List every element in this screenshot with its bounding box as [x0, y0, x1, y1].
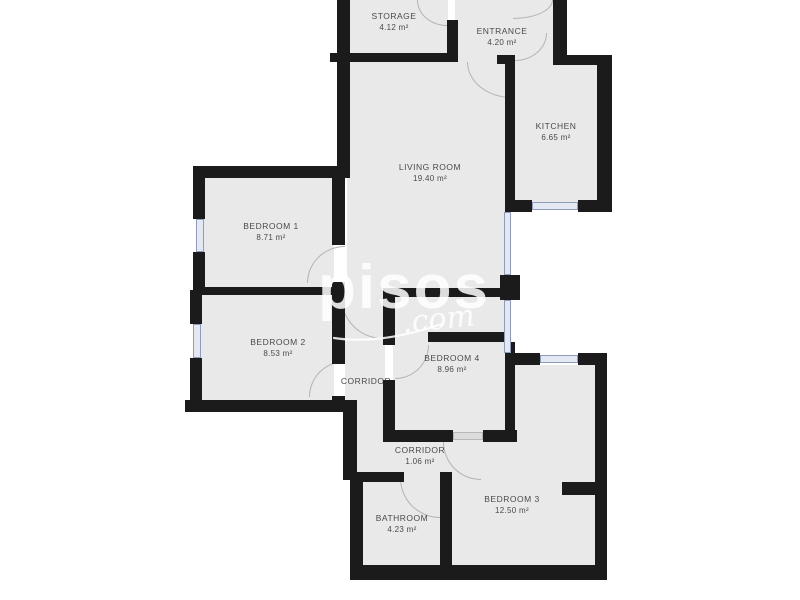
wall-corridor-left	[343, 412, 357, 480]
wall-left-top	[337, 0, 350, 178]
wall-bedroom4-bottom-right	[483, 430, 517, 442]
label-storage-area: 4.12 m²	[372, 22, 417, 33]
wall-bedroom4-bottom-left	[383, 430, 453, 442]
label-storage: STORAGE 4.12 m²	[372, 11, 417, 33]
label-storage-name: STORAGE	[372, 11, 417, 22]
label-kitchen-name: KITCHEN	[536, 121, 577, 132]
label-bedroom3: BEDROOM 3 12.50 m²	[484, 494, 540, 516]
wall-step	[562, 482, 607, 495]
label-bedroom4: BEDROOM 4 8.96 m²	[424, 353, 480, 375]
wall-bedroom4-left-lower	[383, 380, 395, 430]
label-corridor-small: CORRIDOR 1.06 m²	[395, 445, 445, 467]
wall-bathroom-top	[352, 472, 404, 482]
label-bathroom-area: 4.23 m²	[376, 524, 428, 535]
room-bedroom3-arm	[513, 365, 597, 483]
label-corridor-small-name: CORRIDOR	[395, 445, 445, 456]
threshold-bedroom4	[453, 432, 483, 440]
label-bedroom2-area: 8.53 m²	[250, 348, 306, 359]
label-bedroom2: BEDROOM 2 8.53 m²	[250, 337, 306, 359]
window-kitchen	[532, 202, 578, 210]
label-bedroom1: BEDROOM 1 8.71 m²	[243, 221, 299, 243]
label-bedroom3-area: 12.50 m²	[484, 505, 540, 516]
window-lightwell-upper	[504, 212, 511, 275]
label-entrance-name: ENTRANCE	[477, 26, 528, 37]
wall-kitchen-living-divider	[505, 62, 515, 212]
window-bedroom2	[193, 324, 201, 358]
window-lightwell-lower	[504, 300, 511, 353]
label-living-room: LIVING ROOM 19.40 m²	[399, 162, 461, 184]
label-bedroom2-name: BEDROOM 2	[250, 337, 306, 348]
wall-bathroom-right	[440, 472, 452, 567]
window-bedroom1	[196, 219, 204, 252]
wall-kitchen-bottom-right	[578, 200, 608, 212]
label-bathroom-name: BATHROOM	[376, 513, 428, 524]
wall-kitchen-right	[597, 55, 612, 212]
wall-bedroom1-top	[195, 166, 345, 178]
label-bedroom4-area: 8.96 m²	[424, 364, 480, 375]
label-bedroom4-name: BEDROOM 4	[424, 353, 480, 364]
label-corridor-small-area: 1.06 m²	[395, 456, 445, 467]
label-kitchen-area: 6.65 m²	[536, 132, 577, 143]
wall-storage-bottom	[330, 53, 447, 62]
wall-bedroom1-left-lower	[193, 252, 205, 292]
label-entrance-area: 4.20 m²	[477, 37, 528, 48]
label-bedroom1-area: 8.71 m²	[243, 232, 299, 243]
wall-lightwell-pillar	[500, 275, 520, 300]
label-bathroom: BATHROOM 4.23 m²	[376, 513, 428, 535]
label-entrance: ENTRANCE 4.20 m²	[477, 26, 528, 48]
wall-kitchen-bottom-left	[512, 200, 532, 212]
wall-bedroom1-left-upper	[193, 166, 205, 219]
label-bedroom1-name: BEDROOM 1	[243, 221, 299, 232]
floor-plan: STORAGE 4.12 m² ENTRANCE 4.20 m² KITCHEN…	[0, 0, 800, 600]
wall-entrance-right	[553, 0, 567, 57]
wall-right-main	[595, 353, 607, 580]
wall-bedroom2-left-upper	[190, 290, 202, 324]
label-living-room-name: LIVING ROOM	[399, 162, 461, 173]
wall-bathroom-left	[350, 472, 363, 567]
wall-arm-top-left	[513, 353, 540, 365]
wall-bedrooms-right-c	[332, 396, 345, 412]
label-bedroom3-name: BEDROOM 3	[484, 494, 540, 505]
wall-bottom	[350, 565, 607, 580]
wall-bedrooms-right-a	[332, 178, 345, 245]
label-living-room-area: 19.40 m²	[399, 173, 461, 184]
wall-storage-entrance-divider	[447, 20, 458, 62]
label-kitchen: KITCHEN 6.65 m²	[536, 121, 577, 143]
window-bedroom3-arm	[540, 355, 578, 363]
watermark-swash-icon	[330, 318, 450, 344]
